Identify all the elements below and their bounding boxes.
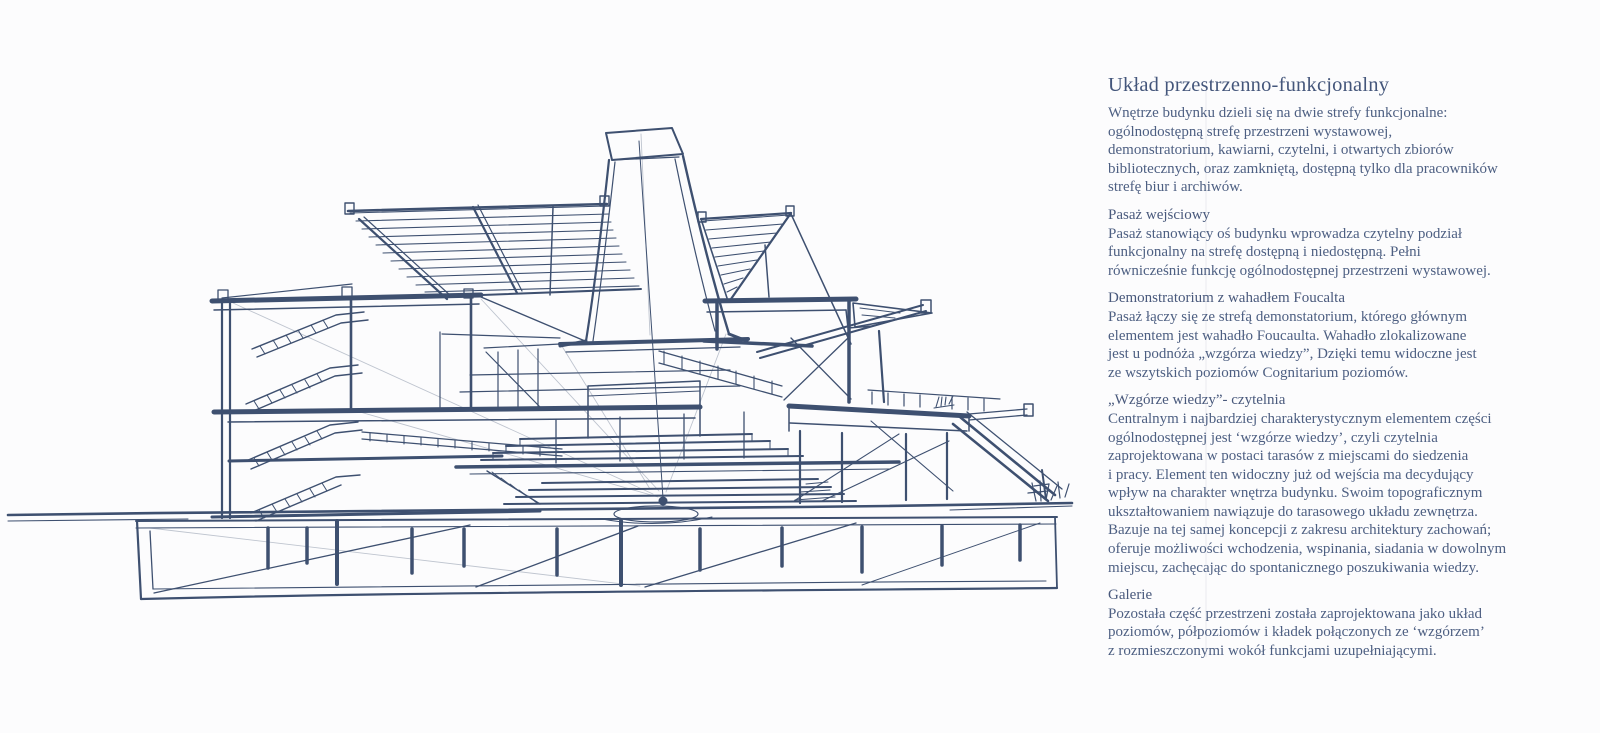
left-wing-floors-stairs — [212, 284, 740, 521]
section-title: Demonstratorium z wahadłem Foucalta — [1108, 289, 1600, 308]
section-body: Pasaż stanowiący oś budynku wprowadza cz… — [1108, 225, 1600, 281]
ground-foundation — [8, 503, 1072, 599]
text-column: Układ przestrzenno-funkcjonalny Wnętrze … — [1108, 74, 1600, 661]
presentation-page: Układ przestrzenno-funkcjonalny Wnętrze … — [0, 0, 1600, 733]
section-body: Pasaż łączy się ze strefą demonstatorium… — [1108, 308, 1600, 382]
tower-skylight — [560, 128, 748, 352]
scribble-mark — [934, 396, 954, 408]
building-section-sketch — [0, 0, 1080, 733]
section-body: Pozostała część przestrzeni została zapr… — [1108, 605, 1600, 661]
right-wing-ramp — [659, 299, 1069, 503]
section-wzgorze-wiedzy: „Wzgórze wiedzy”- czytelnia Centralnym i… — [1108, 391, 1600, 577]
article-intro: Wnętrze budynku dzieli się na dwie stref… — [1108, 104, 1600, 197]
page-title: Układ przestrzenno-funkcjonalny — [1108, 74, 1600, 97]
section-galerie: Galerie Pozostała część przestrzeni zost… — [1108, 586, 1600, 660]
section-body: Centralnym i najbardziej charakterystycz… — [1108, 410, 1600, 577]
section-demonstratorium: Demonstratorium z wahadłem Foucalta Pasa… — [1108, 289, 1600, 382]
knowledge-hill-terraces — [456, 381, 899, 504]
section-title: Galerie — [1108, 586, 1600, 605]
section-title: Pasaż wejściowy — [1108, 206, 1600, 225]
foundation-piles — [268, 525, 1020, 575]
section-title: „Wzgórze wiedzy”- czytelnia — [1108, 391, 1600, 410]
section-pasaz-wejsciowy: Pasaż wejściowy Pasaż stanowiący oś budy… — [1108, 206, 1600, 280]
